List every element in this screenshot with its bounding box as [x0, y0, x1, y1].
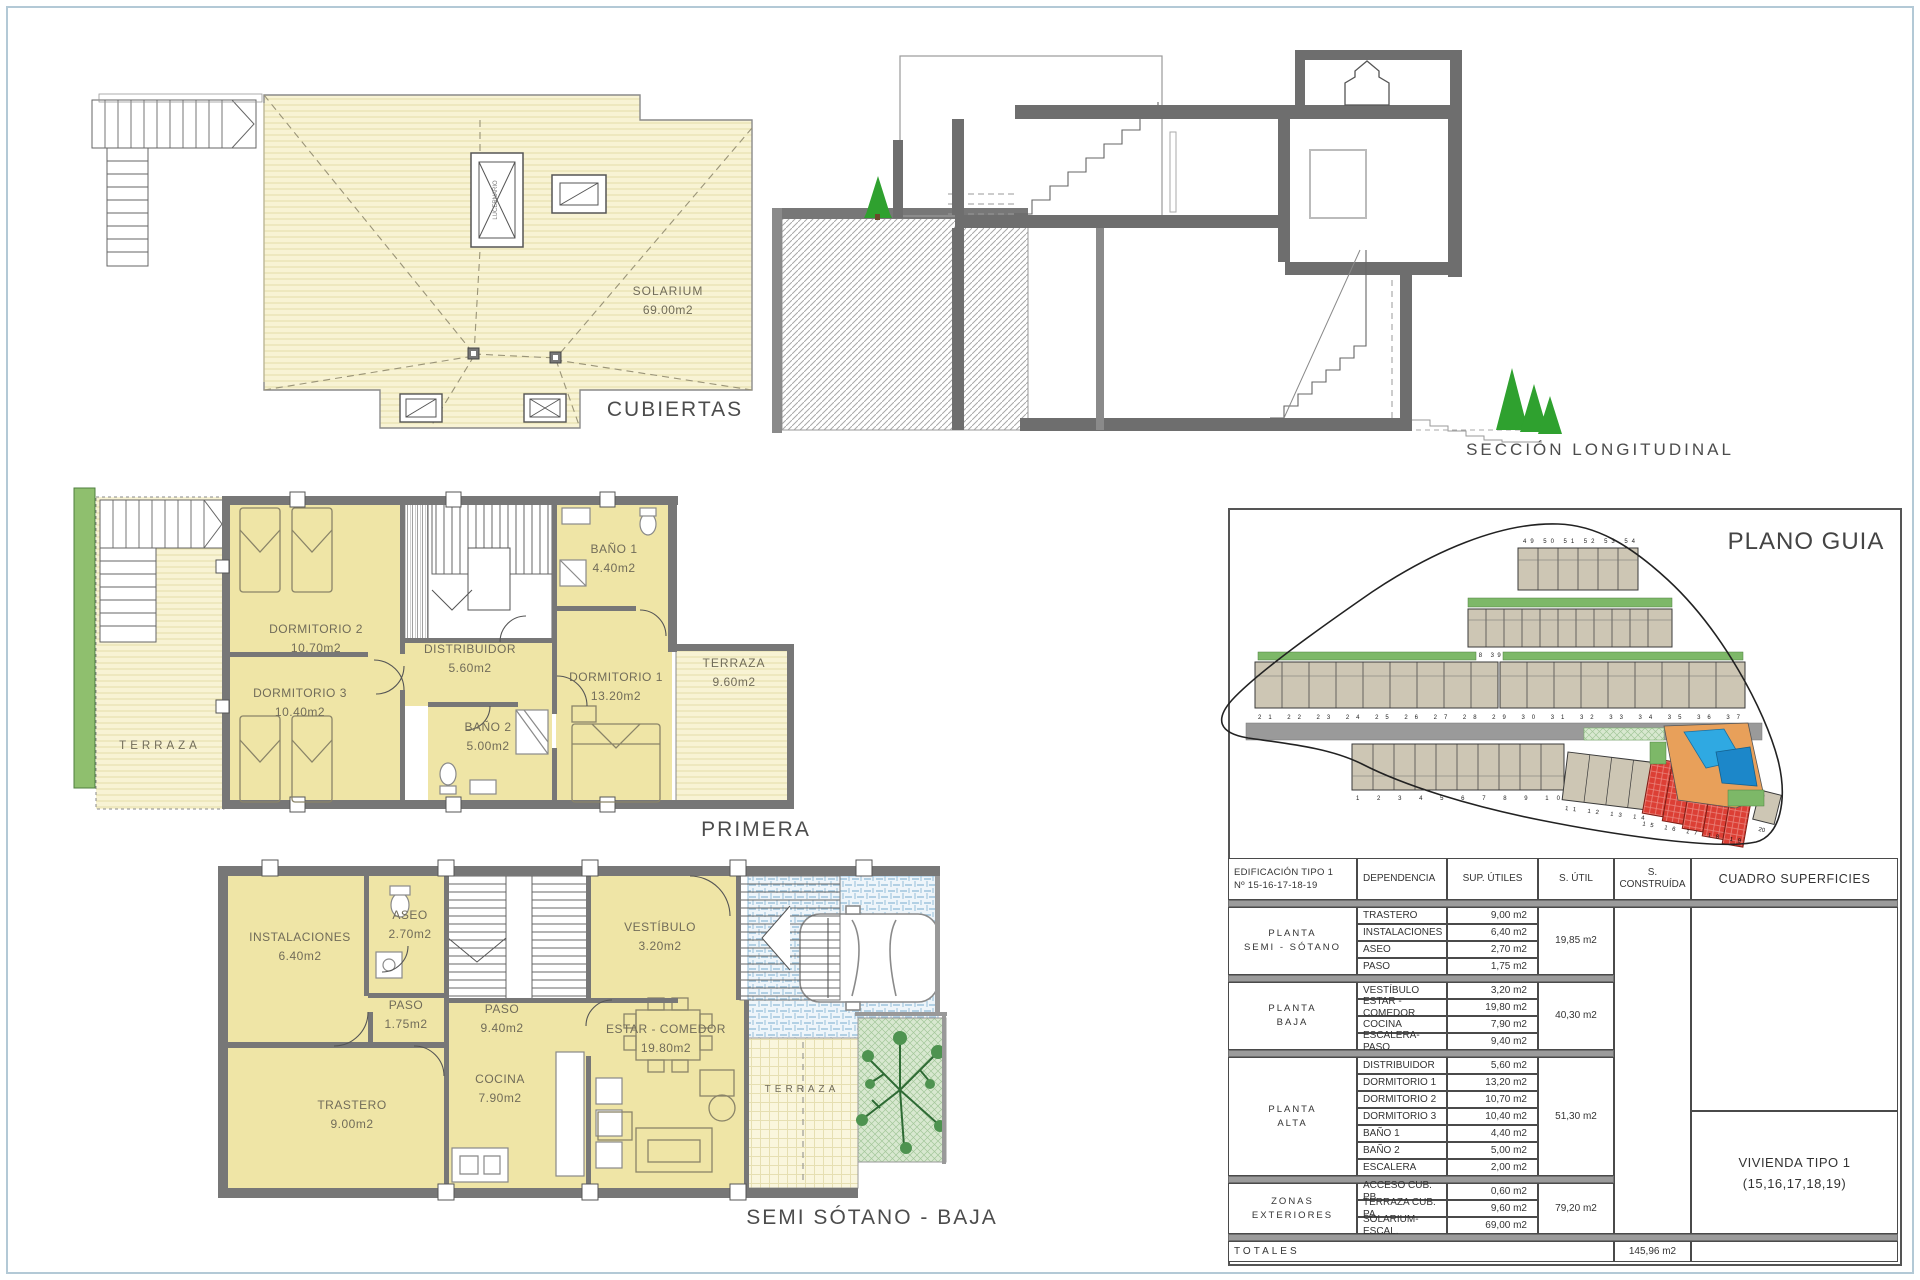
table-cell: 19,80 m2 [1447, 999, 1538, 1016]
totales-value-cell: 145,96 m2 [1614, 1241, 1691, 1262]
dorm1-label: DORMITORIO 113.20m2 [569, 668, 663, 706]
table-cell: BAÑO 1 [1357, 1125, 1447, 1142]
skylight2-icon [552, 175, 606, 213]
section-tree-icon [864, 176, 892, 220]
table-header: EDIFICACIÓN TIPO 1Nº 15-16-17-18-19 [1228, 858, 1357, 900]
paso2-label: PASO9.40m2 [480, 1000, 523, 1038]
group-util: 79,20 m2 [1538, 1183, 1614, 1234]
roof-stairs-icon [92, 94, 262, 266]
table-cell: 5,60 m2 [1447, 1057, 1538, 1074]
table-cell: 1,75 m2 [1447, 958, 1538, 975]
garden [856, 1018, 946, 1162]
table-cell: 10,70 m2 [1447, 1091, 1538, 1108]
table-cell: 6,40 m2 [1447, 924, 1538, 941]
trastero-label: TRASTERO9.00m2 [317, 1096, 386, 1134]
terraza-left-label: TERRAZA [119, 737, 201, 756]
table-cell: 10,40 m2 [1447, 1108, 1538, 1125]
estar-label: ESTAR - COMEDOR19.80m2 [606, 1020, 726, 1058]
table-cell: 2,70 m2 [1447, 941, 1538, 958]
group-label: PLANTABAJA [1228, 982, 1357, 1050]
vestibulo-label: VESTÍBULO3.20m2 [624, 918, 696, 956]
table-cell: TRASTERO [1357, 907, 1447, 924]
stair-core [404, 504, 552, 642]
semisotano-title: SEMI SÓTANO - BAJA [746, 1206, 997, 1230]
table-cell: 5,00 m2 [1447, 1142, 1538, 1159]
section-lower-stairs-icon [1270, 250, 1366, 418]
separator [1228, 1234, 1898, 1241]
cubiertas-title: CUBIERTAS [607, 398, 743, 422]
cocina-label: COCINA7.90m2 [475, 1070, 525, 1108]
group-util: 51,30 m2 [1538, 1057, 1614, 1176]
table-cell: 4,40 m2 [1447, 1125, 1538, 1142]
instalaciones-label: INSTALACIONES6.40m2 [249, 928, 351, 966]
group-label: PLANTAALTA [1228, 1057, 1357, 1176]
table-header: SUP. ÚTILES [1447, 858, 1538, 900]
surface-table: EDIFICACIÓN TIPO 1Nº 15-16-17-18-19 DEPE… [1228, 858, 1898, 1262]
dorm3-label: DORMITORIO 310.40m2 [253, 684, 347, 722]
svg-text:20: 20 [1758, 827, 1767, 835]
section-trees-right-icon [1496, 368, 1562, 434]
table-cell: 9,40 m2 [1447, 1033, 1538, 1050]
group-util: 19,85 m2 [1538, 907, 1614, 975]
table-cell: DORMITORIO 1 [1357, 1074, 1447, 1091]
group-label: ZONASEXTERIORES [1228, 1183, 1357, 1234]
separator [1228, 975, 1614, 982]
table-cell: ASEO [1357, 941, 1447, 958]
unit-row-d: 1 2 3 4 5 6 7 8 9 10 [1352, 744, 1564, 802]
chimney-icon [1345, 61, 1389, 105]
unit-row-a: 49 50 51 52 53 54 [1518, 539, 1638, 590]
table-cell: 9,60 m2 [1447, 1200, 1538, 1217]
entry-stairs-icon [740, 876, 840, 1000]
terraza-grid [748, 1038, 858, 1188]
plano-guia-title: PLANO GUIA [1728, 528, 1885, 556]
table-cell: 2,00 m2 [1447, 1159, 1538, 1176]
semisotano-drawing [200, 850, 970, 1240]
table-cell: DISTRIBUIDOR [1357, 1057, 1447, 1074]
totales-empty-cell [1691, 1241, 1898, 1262]
unit-row-b: 38 39 40 41 42 43 44 45 46 47 48 [1468, 598, 1672, 659]
terraza-right-label: TERRAZA9.60m2 [702, 654, 765, 692]
unit-row-e: 11 12 13 14 [1561, 752, 1656, 822]
totales-label-cell: TOTALES [1228, 1241, 1614, 1262]
table-cell: 0,60 m2 [1447, 1183, 1538, 1200]
bano1-label: BAÑO 14.40m2 [590, 540, 637, 578]
table-header: DEPENDENCIA [1357, 858, 1447, 900]
table-cell: PASO [1357, 958, 1447, 975]
table-header: S. CONSTRUÍDA [1614, 858, 1691, 900]
cuadro-empty-cell [1691, 907, 1898, 1111]
table-cell: ESTAR - COMEDOR [1357, 999, 1447, 1016]
unit-row-c: 21 22 23 24 25 26 27 28 29 30 31 32 33 3… [1255, 652, 1745, 721]
table-cell: BAÑO 2 [1357, 1142, 1447, 1159]
aseo-label: ASEO2.70m2 [388, 906, 431, 944]
table-cell: INSTALACIONES [1357, 924, 1447, 941]
table-cell: ESCALERA [1357, 1159, 1447, 1176]
construida-column [1614, 907, 1691, 1234]
table-cell: ESCALERA-PASO [1357, 1033, 1447, 1050]
table-header: CUADRO SUPERFICIES [1691, 858, 1898, 900]
table-cell: 9,00 m2 [1447, 907, 1538, 924]
svg-text:1 2 3 4 5 6 7 8 9 10: 1 2 3 4 5 6 7 8 9 10 [1356, 796, 1561, 802]
bano2-label: BAÑO 25.00m2 [464, 718, 511, 756]
table-cell: 3,20 m2 [1447, 982, 1538, 999]
site-plan: 49 50 51 52 53 54 38 39 40 41 42 43 44 4… [1210, 500, 1810, 870]
separator [1228, 1050, 1614, 1057]
solarium-label: SOLARIUM69.00m2 [633, 282, 704, 320]
vivienda-cell: VIVIENDA TIPO 1(15,16,17,18,19) [1691, 1111, 1898, 1234]
terraza-left [96, 497, 224, 809]
separator [1228, 900, 1898, 907]
stair-core [448, 876, 590, 1000]
dorm2-label: DORMITORIO 210.70m2 [269, 620, 363, 658]
paso1-label: PASO1.75m2 [384, 996, 427, 1034]
table-cell: DORMITORIO 2 [1357, 1091, 1447, 1108]
table-cell: DORMITORIO 3 [1357, 1108, 1447, 1125]
table-cell: SOLARIUM-ESCAL. [1357, 1217, 1447, 1234]
distribuidor-label: DISTRIBUIDOR5.60m2 [424, 640, 516, 678]
svg-text:LUCERNARIO: LUCERNARIO [493, 180, 499, 220]
green-strip [74, 488, 95, 788]
plan-sheet: LUCERNARIO [0, 0, 1920, 1280]
primera-title: PRIMERA [701, 818, 811, 842]
table-header: S. ÚTIL [1538, 858, 1614, 900]
seccion-title: SECCIÓN LONGITUDINAL [1466, 440, 1734, 460]
terraza-semi-label: TERRAZA [765, 1080, 840, 1099]
group-label: PLANTASEMI - SÓTANO [1228, 907, 1357, 975]
svg-text:21 22 23 24 25 26 27 28 29 30: 21 22 23 24 25 26 27 28 29 30 31 32 33 3… [1258, 715, 1741, 721]
skylight-icon: LUCERNARIO [471, 153, 523, 247]
group-util: 40,30 m2 [1538, 982, 1614, 1050]
table-cell: 13,20 m2 [1447, 1074, 1538, 1091]
table-cell: 7,90 m2 [1447, 1016, 1538, 1033]
ground-hatch [772, 208, 1028, 433]
seccion-drawing [760, 20, 1580, 460]
table-cell: 69,00 m2 [1447, 1217, 1538, 1234]
